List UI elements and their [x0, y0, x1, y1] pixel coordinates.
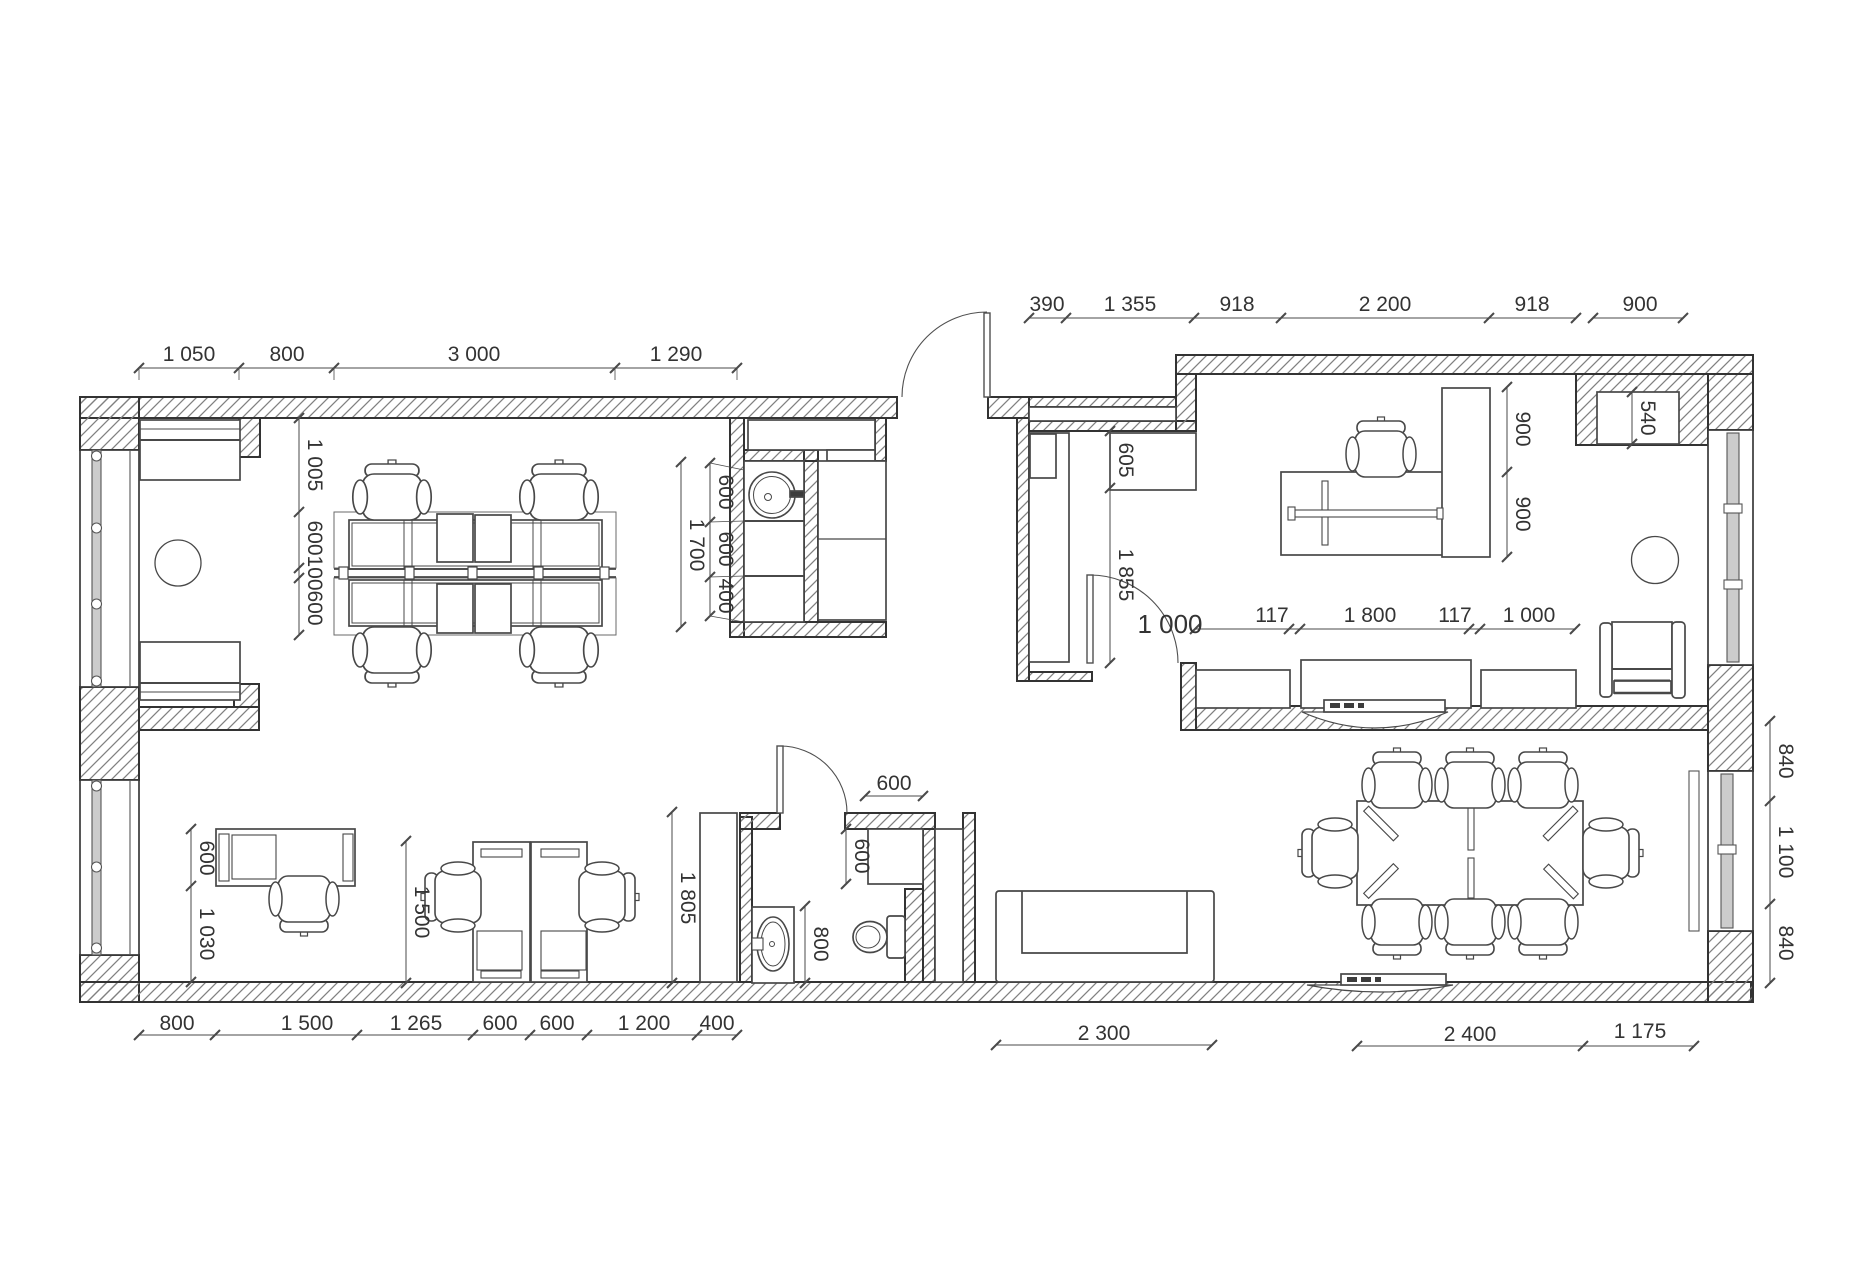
svg-text:840: 840 [1774, 925, 1797, 960]
svg-text:2 200: 2 200 [1359, 293, 1412, 316]
svg-text:1 175: 1 175 [1614, 1020, 1667, 1043]
svg-text:1 030: 1 030 [195, 908, 218, 961]
svg-text:1 700: 1 700 [685, 519, 708, 572]
svg-text:840: 840 [1774, 743, 1797, 778]
svg-text:390: 390 [1029, 293, 1064, 316]
svg-text:600: 600 [195, 840, 218, 875]
svg-text:800: 800 [159, 1012, 194, 1035]
svg-text:600: 600 [850, 838, 873, 873]
svg-text:900: 900 [1511, 496, 1534, 531]
svg-text:918: 918 [1514, 293, 1549, 316]
svg-text:1 355: 1 355 [1104, 293, 1157, 316]
svg-text:600: 600 [714, 474, 737, 509]
svg-text:1 000: 1 000 [1503, 604, 1556, 627]
svg-text:600: 600 [482, 1012, 517, 1035]
svg-text:2 400: 2 400 [1444, 1023, 1497, 1046]
svg-text:600: 600 [303, 590, 326, 625]
svg-text:117: 117 [1438, 604, 1471, 627]
svg-text:1 050: 1 050 [163, 343, 216, 366]
svg-text:605: 605 [1114, 442, 1137, 477]
svg-text:600: 600 [539, 1012, 574, 1035]
svg-text:400: 400 [699, 1012, 734, 1035]
svg-text:3 000: 3 000 [448, 343, 501, 366]
svg-text:1 100: 1 100 [1774, 826, 1797, 879]
svg-text:600: 600 [876, 772, 911, 795]
svg-text:1 805: 1 805 [676, 872, 699, 925]
svg-text:800: 800 [809, 926, 832, 961]
svg-text:1 000: 1 000 [1137, 609, 1202, 639]
svg-text:1 800: 1 800 [1344, 604, 1397, 627]
svg-text:100: 100 [303, 555, 326, 590]
svg-text:900: 900 [1622, 293, 1657, 316]
svg-text:1 500: 1 500 [410, 886, 433, 939]
svg-text:600: 600 [714, 531, 737, 566]
svg-text:2 300: 2 300 [1078, 1022, 1131, 1045]
svg-text:1 855: 1 855 [1114, 549, 1137, 602]
svg-text:1 265: 1 265 [390, 1012, 443, 1035]
svg-text:1 290: 1 290 [650, 343, 703, 366]
svg-text:1 500: 1 500 [281, 1012, 334, 1035]
svg-text:400: 400 [714, 578, 737, 613]
svg-text:540: 540 [1636, 400, 1659, 435]
svg-text:800: 800 [269, 343, 304, 366]
svg-text:117: 117 [1255, 604, 1288, 627]
svg-text:900: 900 [1511, 411, 1534, 446]
svg-text:600: 600 [303, 520, 326, 555]
svg-text:1 200: 1 200 [618, 1012, 671, 1035]
svg-text:918: 918 [1219, 293, 1254, 316]
svg-text:1 005: 1 005 [303, 439, 326, 492]
